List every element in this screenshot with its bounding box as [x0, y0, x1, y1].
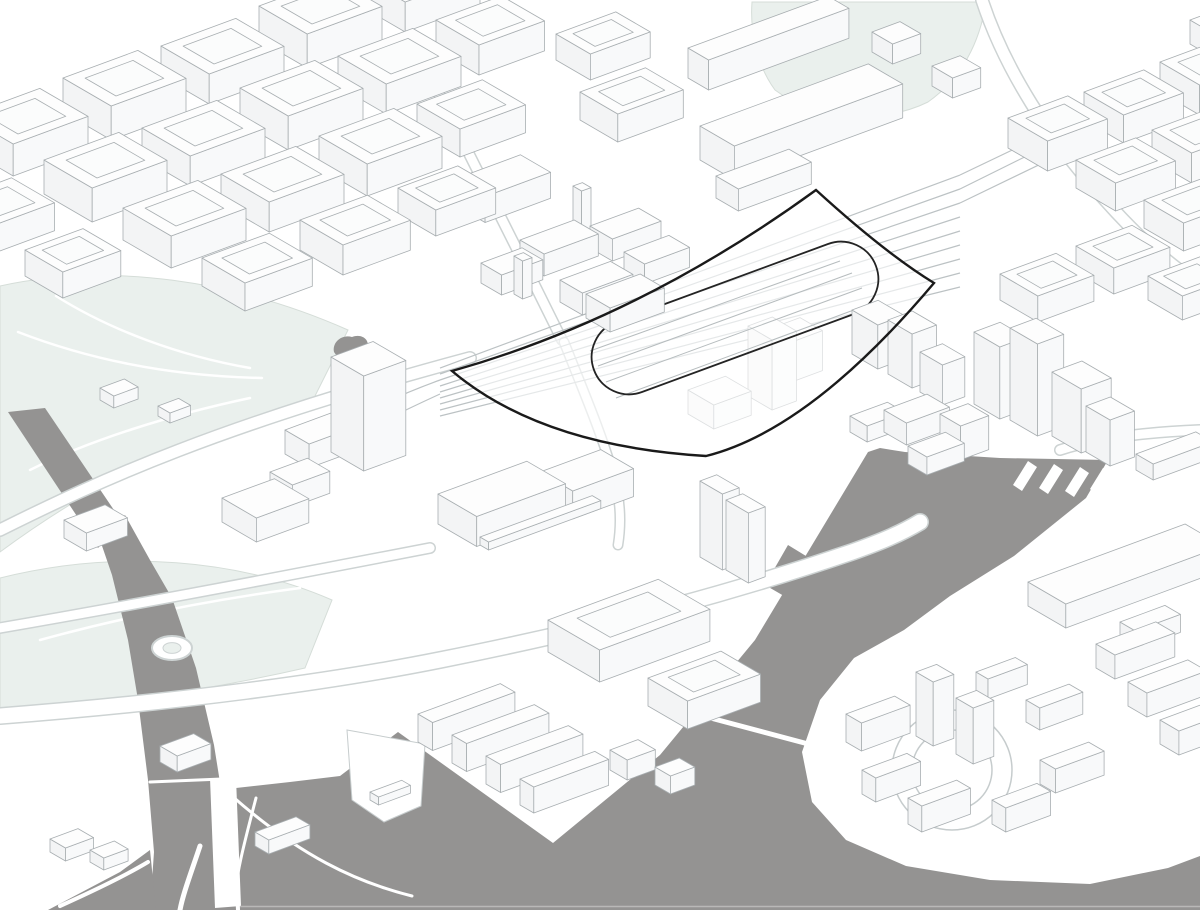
building-face-left	[916, 672, 933, 746]
building-face-right	[1110, 411, 1134, 466]
building	[1086, 397, 1134, 466]
roundabout-island	[163, 643, 181, 654]
building	[956, 690, 994, 764]
building	[908, 780, 970, 832]
building-face-left	[700, 481, 722, 570]
building	[976, 658, 1027, 700]
building-face-right	[364, 361, 406, 472]
building	[580, 68, 683, 142]
building-face-left	[331, 357, 364, 471]
building-face-left	[726, 500, 748, 583]
building	[726, 494, 765, 583]
building	[514, 253, 532, 299]
building	[1026, 684, 1083, 730]
building	[916, 664, 954, 746]
building	[862, 753, 921, 802]
city-axonometric-map	[0, 0, 1200, 910]
building-face-right	[973, 700, 994, 764]
building-face-right	[933, 674, 954, 746]
building	[331, 342, 406, 472]
building	[90, 841, 128, 870]
building	[992, 783, 1051, 832]
building-face-left	[1010, 328, 1038, 436]
building	[846, 696, 910, 751]
building	[556, 12, 650, 80]
building-face-left	[956, 698, 973, 764]
building-face-right	[748, 507, 765, 583]
building	[1040, 742, 1104, 793]
building-face-right	[523, 258, 532, 299]
axonometric-city-map-page	[0, 0, 1200, 910]
building	[50, 829, 94, 861]
building-face-left	[514, 256, 523, 299]
